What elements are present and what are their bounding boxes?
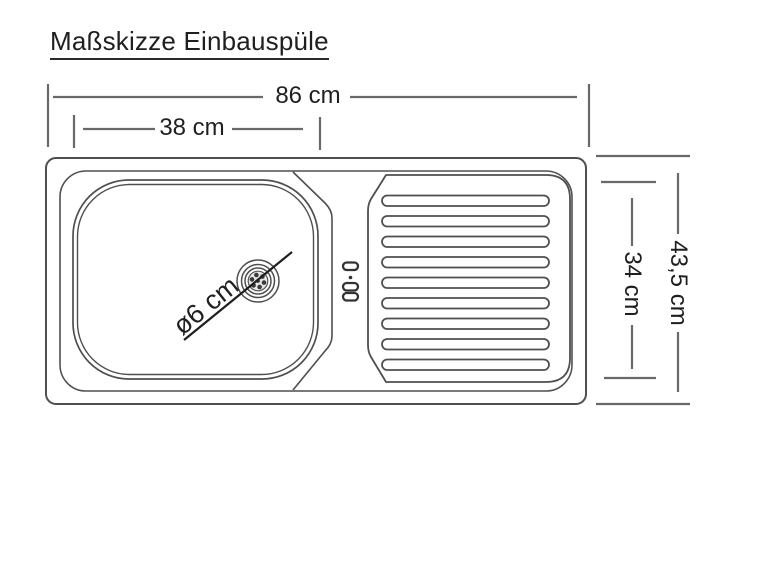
measurement-sketch: Maßskizze Einbauspüle [0, 0, 770, 578]
sink-rim [60, 171, 572, 391]
basin-funnel [293, 172, 332, 390]
dimension-label-total-depth: 43,5 cm [666, 240, 690, 325]
overflow-icon [343, 263, 358, 301]
dimension-label-basin-width: 38 cm [159, 116, 224, 140]
drainboard [368, 175, 570, 382]
sink-diagram [0, 0, 770, 578]
dimension-label-inner-depth: 34 cm [620, 251, 644, 316]
drainboard-ridges [382, 196, 549, 371]
basin [73, 180, 318, 379]
dimension-label-total-width: 86 cm [275, 84, 340, 108]
